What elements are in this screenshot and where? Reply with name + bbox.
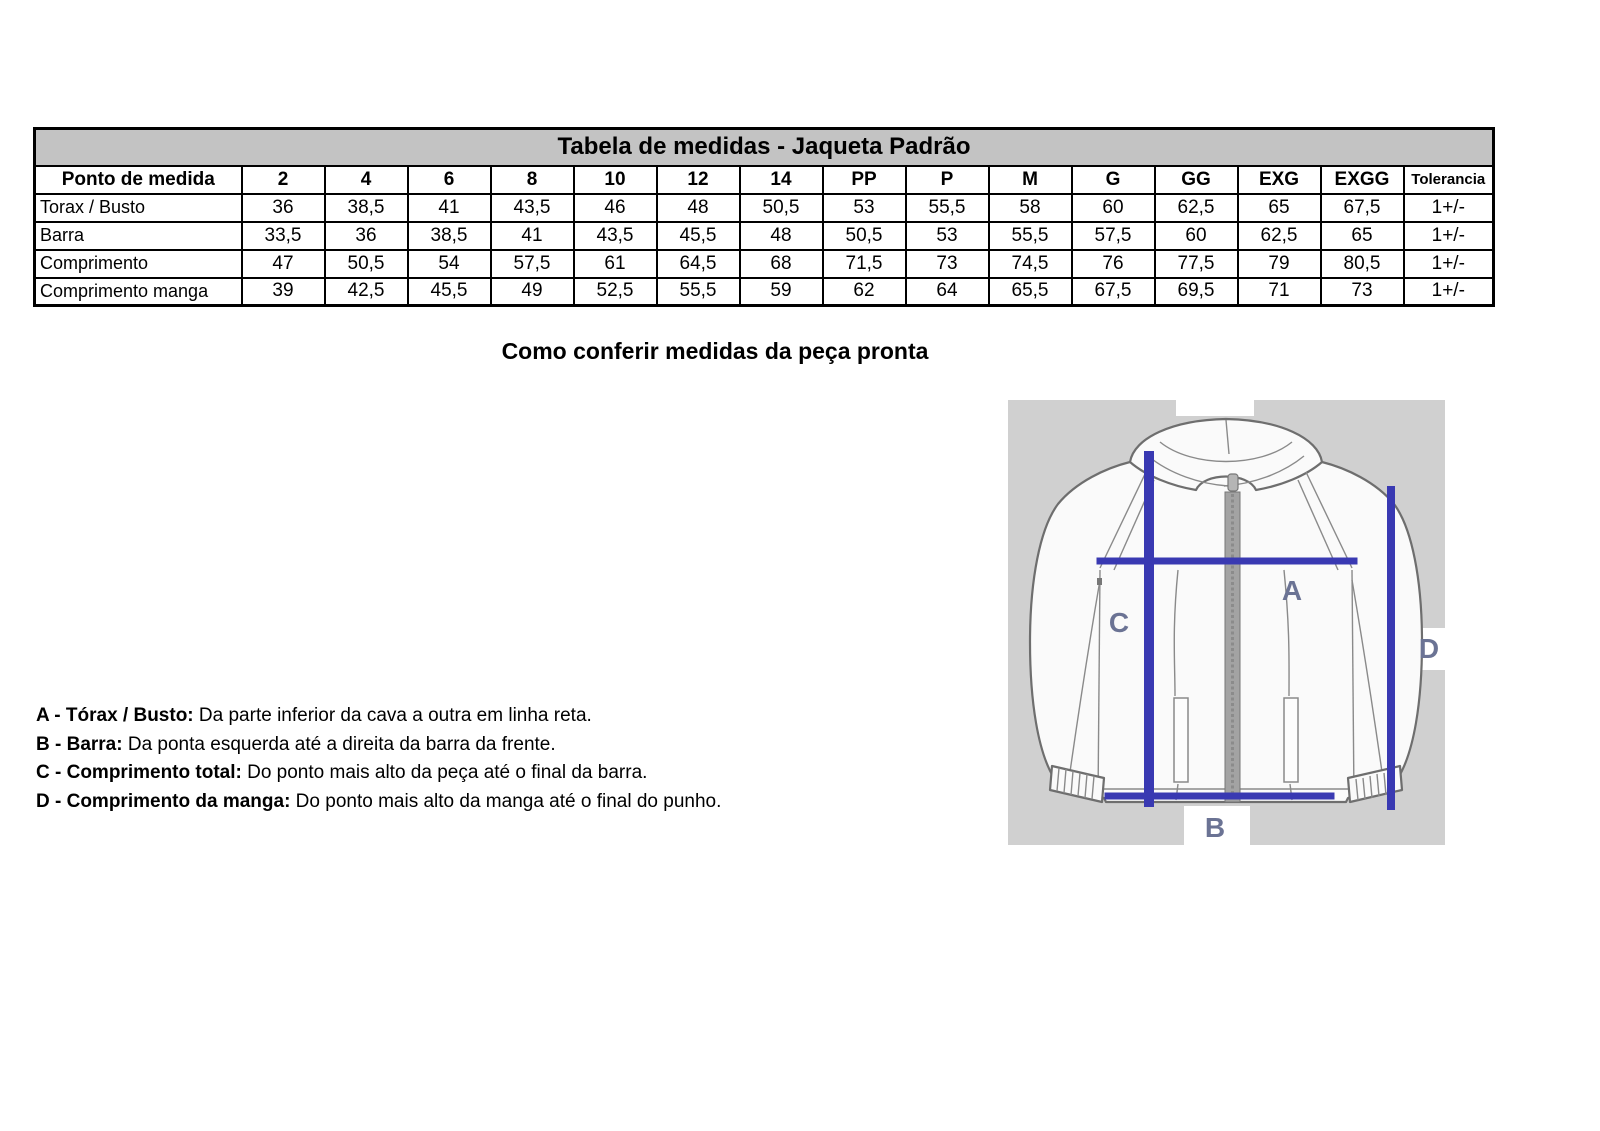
- column-header-pp: PP: [823, 166, 906, 194]
- measure-cell: 36: [325, 222, 408, 250]
- page: Tabela de medidas - Jaqueta Padrão Ponto…: [0, 0, 1600, 1131]
- measure-cell: 54: [408, 250, 491, 278]
- note-text-c: Do ponto mais alto da peça até o final d…: [242, 762, 648, 783]
- measure-cell: 50,5: [325, 250, 408, 278]
- row-label: Comprimento: [35, 250, 242, 278]
- measure-cell: 50,5: [740, 194, 823, 222]
- note-label-c: C - Comprimento total:: [36, 762, 242, 783]
- measure-cell: 41: [408, 194, 491, 222]
- size-table-wrap: Tabela de medidas - Jaqueta Padrão Ponto…: [33, 127, 1495, 307]
- measure-cell: 52,5: [574, 278, 657, 306]
- column-header-exgg: EXGG: [1321, 166, 1404, 194]
- measure-cell: 55,5: [989, 222, 1072, 250]
- measure-cell: 39: [242, 278, 325, 306]
- table-title-cell: Tabela de medidas - Jaqueta Padrão: [35, 129, 1494, 166]
- measure-cell: 71: [1238, 278, 1321, 306]
- measure-cell: 1+/-: [1404, 250, 1494, 278]
- column-header-tolerancia: Tolerancia: [1404, 166, 1494, 194]
- note-label-b: B - Barra:: [36, 734, 123, 755]
- measure-cell: 48: [657, 194, 740, 222]
- note-text-d: Do ponto mais alto da manga até o final …: [290, 791, 721, 812]
- measure-cell: 45,5: [657, 222, 740, 250]
- note-text-a: Da parte inferior da cava a outra em lin…: [194, 705, 592, 726]
- measure-cell: 65,5: [989, 278, 1072, 306]
- measure-cell: 60: [1155, 222, 1238, 250]
- measure-cell: 38,5: [408, 222, 491, 250]
- measure-cell: 64,5: [657, 250, 740, 278]
- table-row: Barra33,53638,54143,545,54850,55355,557,…: [35, 222, 1494, 250]
- table-row: Torax / Busto3638,54143,5464850,55355,55…: [35, 194, 1494, 222]
- measure-cell: 65: [1238, 194, 1321, 222]
- row-label: Comprimento manga: [35, 278, 242, 306]
- column-header-4: 4: [325, 166, 408, 194]
- measure-cell: 57,5: [491, 250, 574, 278]
- measure-cell: 48: [740, 222, 823, 250]
- seam-marker: [1097, 578, 1102, 585]
- column-header-2: 2: [242, 166, 325, 194]
- column-header-10: 10: [574, 166, 657, 194]
- column-header-6: 6: [408, 166, 491, 194]
- column-header-14: 14: [740, 166, 823, 194]
- measure-cell: 69,5: [1155, 278, 1238, 306]
- table-row: Comprimento4750,55457,56164,56871,57374,…: [35, 250, 1494, 278]
- scan-patch: [1176, 400, 1254, 416]
- measure-cell: 1+/-: [1404, 222, 1494, 250]
- pocket-left: [1174, 698, 1188, 782]
- column-header-ponto-de-medida: Ponto de medida: [35, 166, 242, 194]
- measure-cell: 46: [574, 194, 657, 222]
- measure-cell: 58: [989, 194, 1072, 222]
- column-header-g: G: [1072, 166, 1155, 194]
- measure-cell: 62,5: [1238, 222, 1321, 250]
- measure-cell: 73: [906, 250, 989, 278]
- label-a: A: [1282, 575, 1302, 606]
- page-subtitle: Como conferir medidas da peça pronta: [0, 338, 1430, 365]
- measure-cell: 43,5: [574, 222, 657, 250]
- notes-block: A - Tórax / Busto: Da parte inferior da …: [36, 702, 721, 816]
- measure-cell: 65: [1321, 222, 1404, 250]
- measure-cell: 53: [906, 222, 989, 250]
- measure-cell: 80,5: [1321, 250, 1404, 278]
- zipper-pull: [1228, 474, 1238, 491]
- measure-cell: 74,5: [989, 250, 1072, 278]
- measure-cell: 67,5: [1072, 278, 1155, 306]
- label-b: B: [1205, 812, 1225, 843]
- measure-cell: 62: [823, 278, 906, 306]
- column-header-8: 8: [491, 166, 574, 194]
- measure-cell: 55,5: [906, 194, 989, 222]
- size-table: Tabela de medidas - Jaqueta Padrão Ponto…: [33, 127, 1495, 307]
- note-label-a: A - Tórax / Busto:: [36, 705, 194, 726]
- measure-cell: 41: [491, 222, 574, 250]
- measure-cell: 76: [1072, 250, 1155, 278]
- row-label: Torax / Busto: [35, 194, 242, 222]
- measure-cell: 77,5: [1155, 250, 1238, 278]
- note-line-c: C - Comprimento total: Do ponto mais alt…: [36, 759, 721, 788]
- measure-cell: 1+/-: [1404, 194, 1494, 222]
- measure-cell: 64: [906, 278, 989, 306]
- measure-cell: 49: [491, 278, 574, 306]
- label-d: D: [1419, 633, 1439, 664]
- measure-cell: 79: [1238, 250, 1321, 278]
- measure-cell: 59: [740, 278, 823, 306]
- note-text-b: Da ponta esquerda até a direita da barra…: [123, 734, 556, 755]
- table-title-row: Tabela de medidas - Jaqueta Padrão: [35, 129, 1494, 166]
- measure-cell: 43,5: [491, 194, 574, 222]
- measure-cell: 73: [1321, 278, 1404, 306]
- measure-cell: 60: [1072, 194, 1155, 222]
- column-header-12: 12: [657, 166, 740, 194]
- measure-cell: 53: [823, 194, 906, 222]
- row-label: Barra: [35, 222, 242, 250]
- measure-cell: 1+/-: [1404, 278, 1494, 306]
- column-header-exg: EXG: [1238, 166, 1321, 194]
- jacket-diagram-svg: C A D B: [1008, 400, 1445, 845]
- measure-cell: 33,5: [242, 222, 325, 250]
- table-row: Comprimento manga3942,545,54952,555,5596…: [35, 278, 1494, 306]
- header-row: Ponto de medida2468101214PPPMGGGEXGEXGGT…: [35, 166, 1494, 194]
- measure-cell: 55,5: [657, 278, 740, 306]
- note-label-d: D - Comprimento da manga:: [36, 791, 290, 812]
- measure-cell: 67,5: [1321, 194, 1404, 222]
- measure-cell: 68: [740, 250, 823, 278]
- measure-cell: 62,5: [1155, 194, 1238, 222]
- jacket-diagram: C A D B: [1008, 400, 1445, 845]
- measure-cell: 45,5: [408, 278, 491, 306]
- note-line-a: A - Tórax / Busto: Da parte inferior da …: [36, 702, 721, 731]
- measure-cell: 71,5: [823, 250, 906, 278]
- note-line-d: D - Comprimento da manga: Do ponto mais …: [36, 788, 721, 817]
- measure-cell: 57,5: [1072, 222, 1155, 250]
- column-header-p: P: [906, 166, 989, 194]
- measure-cell: 61: [574, 250, 657, 278]
- measure-cell: 50,5: [823, 222, 906, 250]
- measure-cell: 38,5: [325, 194, 408, 222]
- column-header-m: M: [989, 166, 1072, 194]
- column-header-gg: GG: [1155, 166, 1238, 194]
- label-c: C: [1109, 607, 1129, 638]
- measure-cell: 42,5: [325, 278, 408, 306]
- note-line-b: B - Barra: Da ponta esquerda até a direi…: [36, 731, 721, 760]
- measure-cell: 36: [242, 194, 325, 222]
- measure-cell: 47: [242, 250, 325, 278]
- pocket-right: [1284, 698, 1298, 782]
